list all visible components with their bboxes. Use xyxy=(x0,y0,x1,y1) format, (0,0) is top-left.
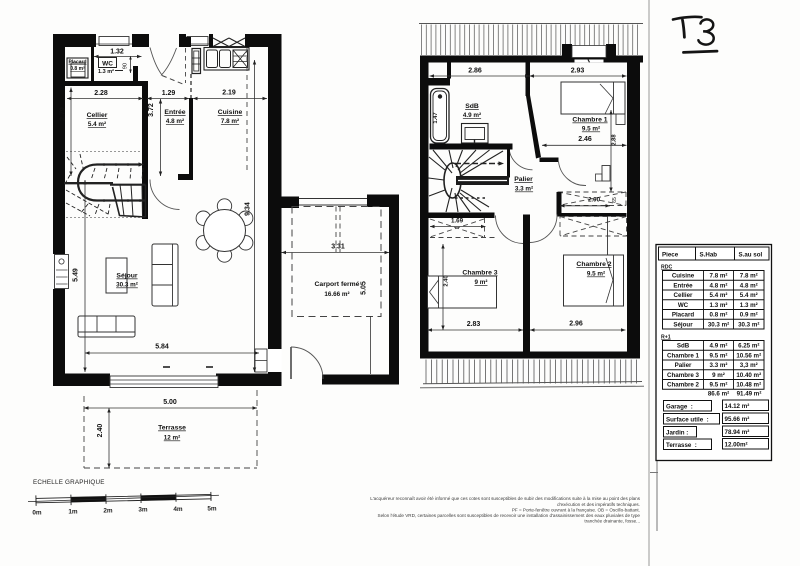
svg-text:Cuisine: Cuisine xyxy=(672,273,695,280)
svg-text:5.4 m²: 5.4 m² xyxy=(88,121,106,128)
svg-text:2.83: 2.83 xyxy=(467,321,481,328)
svg-text:9.5 m²: 9.5 m² xyxy=(582,126,600,133)
svg-text:Cellier: Cellier xyxy=(87,112,108,119)
svg-text:Cellier: Cellier xyxy=(674,292,694,299)
svg-text:2.86: 2.86 xyxy=(468,68,482,75)
svg-text:SdB: SdB xyxy=(677,343,690,350)
svg-text:3m: 3m xyxy=(138,507,148,514)
svg-text:3.72: 3.72 xyxy=(148,103,155,117)
svg-text:4.9 m²: 4.9 m² xyxy=(463,112,481,119)
svg-text:R+1: R+1 xyxy=(661,335,671,341)
svg-text:5m: 5m xyxy=(207,506,217,513)
svg-text:Placard: Placard xyxy=(672,312,695,319)
svg-text:5.4 m²: 5.4 m² xyxy=(710,292,728,299)
svg-text:9.5 m²: 9.5 m² xyxy=(710,352,728,359)
svg-text:ECHELLE GRAPHIQUE: ECHELLE GRAPHIQUE xyxy=(33,479,105,486)
svg-text:Terrasse: Terrasse xyxy=(158,425,186,432)
svg-text:Garage :: Garage : xyxy=(666,403,693,410)
svg-text:Chambre 2: Chambre 2 xyxy=(576,261,611,268)
svg-text:7.8 m²: 7.8 m² xyxy=(710,273,728,280)
svg-text:12 m²: 12 m² xyxy=(164,435,180,442)
svg-text:2m: 2m xyxy=(103,508,113,515)
svg-text:tranchée drainante, fosse...: tranchée drainante, fosse... xyxy=(584,519,640,524)
svg-text:5.84: 5.84 xyxy=(155,344,169,351)
svg-text:4.8 m²: 4.8 m² xyxy=(740,282,758,289)
svg-text:Jardin :: Jardin : xyxy=(666,429,688,436)
svg-text:Surface utile :: Surface utile : xyxy=(666,416,709,423)
svg-text:10.48 m²: 10.48 m² xyxy=(736,382,761,389)
svg-text:S.Hab: S.Hab xyxy=(700,252,718,259)
svg-text:10.40 m²: 10.40 m² xyxy=(736,372,761,379)
svg-text:7.8 m²: 7.8 m² xyxy=(221,118,239,125)
svg-text:2.28: 2.28 xyxy=(94,90,108,97)
svg-text:3,3 m²: 3,3 m² xyxy=(740,362,758,369)
svg-text:3.3 m²: 3.3 m² xyxy=(710,362,728,369)
svg-text:9 m²: 9 m² xyxy=(475,279,488,286)
svg-text:1.3 m²: 1.3 m² xyxy=(98,68,114,75)
svg-text:Chambre 2: Chambre 2 xyxy=(667,382,700,389)
svg-text:WC: WC xyxy=(678,302,689,309)
svg-text:5.00: 5.00 xyxy=(163,399,177,406)
svg-text:4.8 m²: 4.8 m² xyxy=(166,118,184,125)
svg-text:Séjour: Séjour xyxy=(116,273,138,280)
svg-text:12.00m²: 12.00m² xyxy=(725,441,748,448)
svg-text:91.49 m²: 91.49 m² xyxy=(737,391,762,398)
svg-text:16.66 m²: 16.66 m² xyxy=(324,291,349,298)
svg-text:0.8 m²: 0.8 m² xyxy=(70,66,85,72)
svg-text:1.32: 1.32 xyxy=(110,49,124,56)
svg-text:9.5 m²: 9.5 m² xyxy=(587,271,605,278)
svg-text:Terrasse :: Terrasse : xyxy=(666,442,697,449)
svg-text:2.46: 2.46 xyxy=(578,136,592,143)
svg-text:4m: 4m xyxy=(173,506,183,513)
svg-text:Selon l'étude VRD, certaines p: Selon l'étude VRD, certaines parcelles s… xyxy=(378,513,641,518)
svg-text:Chambre 1: Chambre 1 xyxy=(572,117,607,124)
svg-text:Entrée: Entrée xyxy=(673,282,693,289)
svg-text:1.3 m²: 1.3 m² xyxy=(740,302,758,309)
svg-text:d'exécution et des impératifs: d'exécution et des impératifs techniques… xyxy=(557,502,640,507)
svg-text:5.49: 5.49 xyxy=(73,268,80,282)
svg-text:1.29: 1.29 xyxy=(162,90,176,97)
svg-text:SdB: SdB xyxy=(465,103,479,110)
svg-text:Entrée: Entrée xyxy=(164,109,185,116)
svg-text:2.40: 2.40 xyxy=(97,424,104,438)
svg-text:90: 90 xyxy=(123,63,129,69)
svg-text:Palier: Palier xyxy=(514,176,533,183)
svg-text:1.47: 1.47 xyxy=(433,112,439,123)
svg-text:WC: WC xyxy=(102,61,113,68)
svg-text:Carport fermé: Carport fermé xyxy=(315,281,360,288)
svg-text:Séjour: Séjour xyxy=(673,321,693,328)
svg-text:1.69: 1.69 xyxy=(451,218,464,225)
svg-text:2.79: 2.79 xyxy=(60,107,67,121)
svg-text:0m: 0m xyxy=(32,510,42,517)
svg-text:95.66 m²: 95.66 m² xyxy=(725,416,750,423)
svg-text:30.3 m²: 30.3 m² xyxy=(116,282,138,289)
svg-text:Chambre 3: Chambre 3 xyxy=(462,270,497,277)
svg-text:78.94 m²: 78.94 m² xyxy=(725,429,750,436)
svg-text:4.8 m²: 4.8 m² xyxy=(710,282,728,289)
svg-text:Cuisine: Cuisine xyxy=(218,109,243,116)
svg-text:9.34: 9.34 xyxy=(245,202,252,216)
svg-text:9.5 m²: 9.5 m² xyxy=(710,382,728,389)
svg-text:S.au sol: S.au sol xyxy=(739,252,763,259)
svg-text:9 m²: 9 m² xyxy=(712,372,725,379)
svg-text:30.3 m²: 30.3 m² xyxy=(738,321,759,328)
svg-text:Chambre 3: Chambre 3 xyxy=(667,372,700,379)
svg-text:2.88: 2.88 xyxy=(612,134,618,146)
svg-text:3.3 m²: 3.3 m² xyxy=(515,186,533,193)
svg-text:PF = Porte-fenêtre ouvrant à l: PF = Porte-fenêtre ouvrant à la français… xyxy=(512,508,640,513)
svg-text:0.8 m²: 0.8 m² xyxy=(710,312,728,319)
svg-text:5.4 m²: 5.4 m² xyxy=(740,292,758,299)
svg-text:2.00: 2.00 xyxy=(588,197,601,204)
svg-text:7.8 m²: 7.8 m² xyxy=(740,273,758,280)
svg-text:2.93: 2.93 xyxy=(571,68,585,75)
svg-text:1.3 m²: 1.3 m² xyxy=(710,302,728,309)
svg-text:2.96: 2.96 xyxy=(569,321,583,328)
svg-text:86.6 m²: 86.6 m² xyxy=(708,391,729,398)
svg-text:65: 65 xyxy=(612,197,618,203)
svg-text:14.12 m²: 14.12 m² xyxy=(725,403,750,410)
svg-text:3.31: 3.31 xyxy=(331,244,345,251)
svg-text:RDC: RDC xyxy=(661,265,672,271)
svg-text:Piece: Piece xyxy=(662,252,679,259)
svg-text:0.9 m²: 0.9 m² xyxy=(740,312,758,319)
svg-text:L'acquéreur reconnaît avoir ét: L'acquéreur reconnaît avoir été informé … xyxy=(370,496,640,501)
svg-text:1m: 1m xyxy=(68,509,78,516)
svg-text:Palier: Palier xyxy=(675,362,692,369)
svg-text:10.56 m²: 10.56 m² xyxy=(736,352,761,359)
svg-text:30.3 m²: 30.3 m² xyxy=(708,321,729,328)
svg-text:4.9 m²: 4.9 m² xyxy=(710,343,728,350)
svg-text:2.19: 2.19 xyxy=(222,90,236,97)
svg-text:6.25 m²: 6.25 m² xyxy=(738,343,759,350)
svg-text:Chambre 1: Chambre 1 xyxy=(667,352,700,359)
svg-text:Placard: Placard xyxy=(68,60,86,66)
svg-text:5.05: 5.05 xyxy=(361,281,368,295)
svg-text:2.40: 2.40 xyxy=(444,275,450,286)
